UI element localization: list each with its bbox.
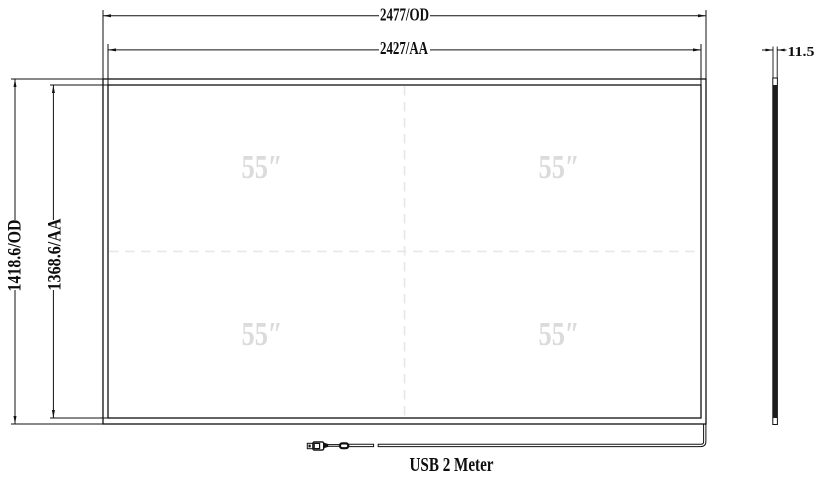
svg-text:55″: 55″ — [242, 149, 283, 186]
svg-text:55″: 55″ — [539, 149, 580, 186]
svg-text:USB 2 Meter: USB 2 Meter — [410, 454, 494, 476]
svg-text:1368.6/AA: 1368.6/AA — [45, 218, 65, 291]
svg-text:2477/OD: 2477/OD — [380, 5, 429, 25]
svg-text:11.5: 11.5 — [788, 45, 815, 60]
svg-text:2427/AA: 2427/AA — [380, 38, 428, 58]
svg-text:55″: 55″ — [242, 316, 283, 353]
svg-text:55″: 55″ — [539, 316, 580, 353]
svg-text:1418.6/OD: 1418.6/OD — [6, 220, 26, 292]
